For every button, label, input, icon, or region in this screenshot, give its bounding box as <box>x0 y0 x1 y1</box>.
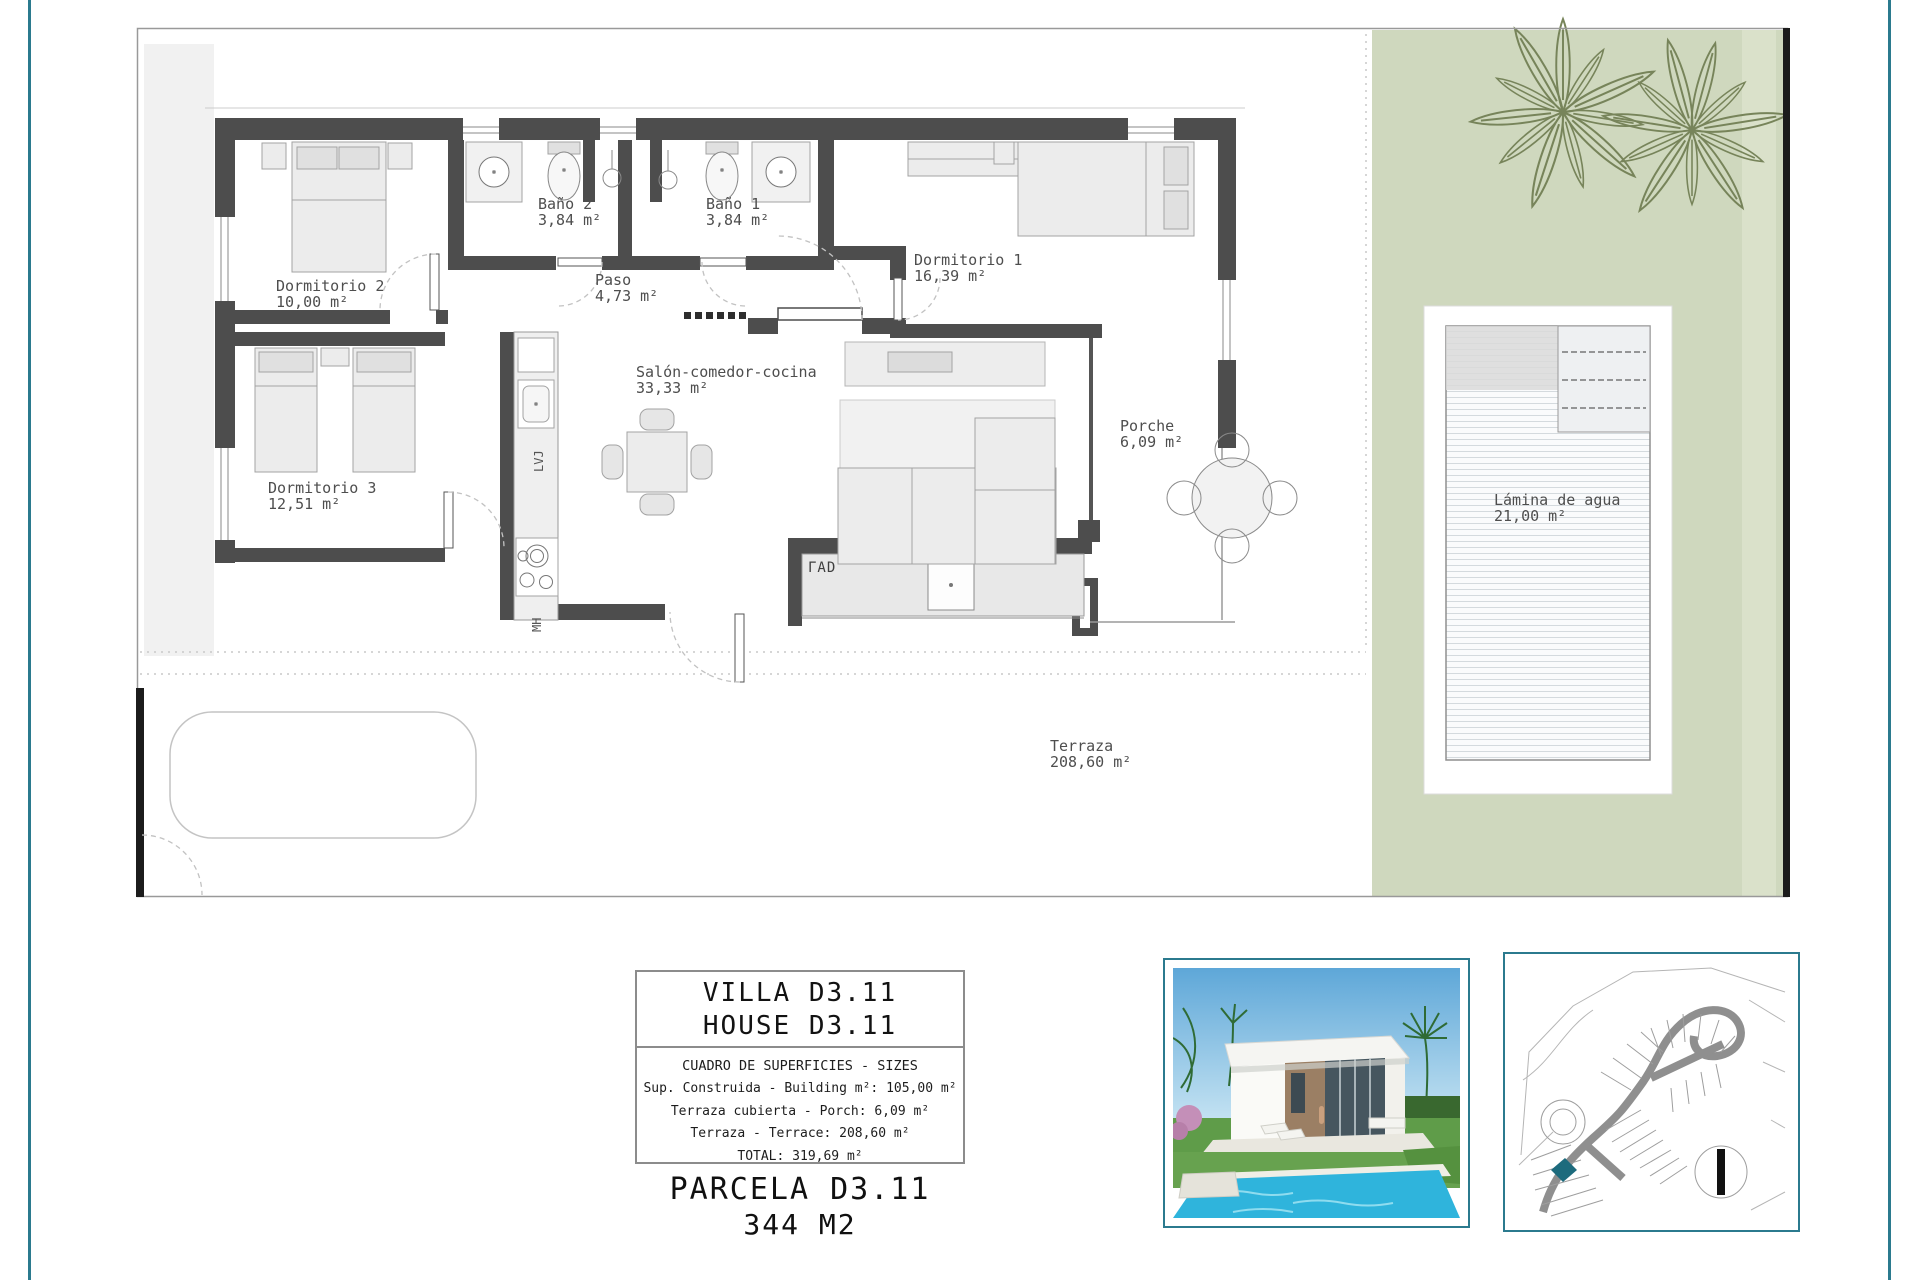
room-label-lamina-de-agua: Lámina de agua 21,00 m² <box>1494 492 1620 524</box>
room-area: 3,84 m² <box>706 212 769 228</box>
dishwasher-label: LVJ <box>532 450 546 472</box>
surface-row-total: TOTAL: 319,69 m² <box>637 1146 963 1169</box>
room-label-dormitorio-1: Dormitorio 1 16,39 m² <box>914 252 1022 284</box>
parcel-area: 344 M2 <box>600 1208 1000 1241</box>
site-plan-image <box>1511 960 1792 1224</box>
car-outline <box>170 712 476 838</box>
tv-unit-label: ΓAD <box>808 560 836 576</box>
pool-step <box>1179 1172 1239 1198</box>
surface-table: VILLA D3.11 HOUSE D3.11 CUADRO DE SUPERF… <box>635 970 965 1164</box>
surface-row-building: Sup. Construida - Building m²: 105,00 m² <box>637 1078 963 1101</box>
villa-render-image <box>1173 968 1460 1218</box>
villa-title-es: VILLA D3.11 <box>637 977 963 1010</box>
surface-table-header: CUADRO DE SUPERFICIES - SIZES <box>637 1055 963 1078</box>
room-area: 6,09 m² <box>1120 434 1183 450</box>
room-area: 33,33 m² <box>636 380 817 396</box>
chaise-longue <box>975 418 1055 564</box>
dining-table <box>627 432 687 492</box>
site-plan-map <box>1503 952 1800 1232</box>
radiator-symbol <box>684 312 746 319</box>
room-label-bano-1: Baño 1 3,84 m² <box>706 196 769 228</box>
room-label-porche: Porche 6,09 m² <box>1120 418 1183 450</box>
porch-table <box>1192 458 1272 538</box>
pool <box>1424 306 1672 794</box>
room-area: 208,60 m² <box>1050 754 1131 770</box>
shower-symbol <box>603 150 677 189</box>
room-area: 12,51 m² <box>268 496 376 512</box>
parcel-title: PARCELA D3.11 <box>600 1172 1000 1207</box>
toilet <box>548 152 580 200</box>
room-label-bano-2: Baño 2 3,84 m² <box>538 196 601 228</box>
plan-sheet: Dormitorio 2 10,00 m² Baño 2 3,84 m² Bañ… <box>0 0 1920 1280</box>
villa-title-en: HOUSE D3.11 <box>637 1010 963 1043</box>
room-area: 10,00 m² <box>276 294 384 310</box>
person-figure <box>1319 1106 1324 1124</box>
villa-render-photo <box>1163 958 1470 1228</box>
room-area: 4,73 m² <box>595 288 658 304</box>
room-label-salon: Salón-comedor-cocina 33,33 m² <box>636 364 817 396</box>
surface-row-terrace: Terraza - Terrace: 208,60 m² <box>637 1123 963 1146</box>
surface-table-body: CUADRO DE SUPERFICIES - SIZES Sup. Const… <box>637 1048 963 1168</box>
room-label-paso: Paso 4,73 m² <box>595 272 658 304</box>
room-label-dormitorio-2: Dormitorio 2 10,00 m² <box>276 278 384 310</box>
room-label-dormitorio-3: Dormitorio 3 12,51 m² <box>268 480 376 512</box>
room-label-terraza: Terraza 208,60 m² <box>1050 738 1131 770</box>
toilet <box>706 152 738 200</box>
room-area: 16,39 m² <box>914 268 1022 284</box>
surface-row-porch: Terraza cubierta - Porch: 6,09 m² <box>637 1101 963 1124</box>
room-area: 3,84 m² <box>538 212 601 228</box>
microwave-label: MH <box>530 618 544 632</box>
villa-title-block: VILLA D3.11 HOUSE D3.11 <box>637 972 963 1048</box>
room-area: 21,00 m² <box>1494 508 1620 524</box>
